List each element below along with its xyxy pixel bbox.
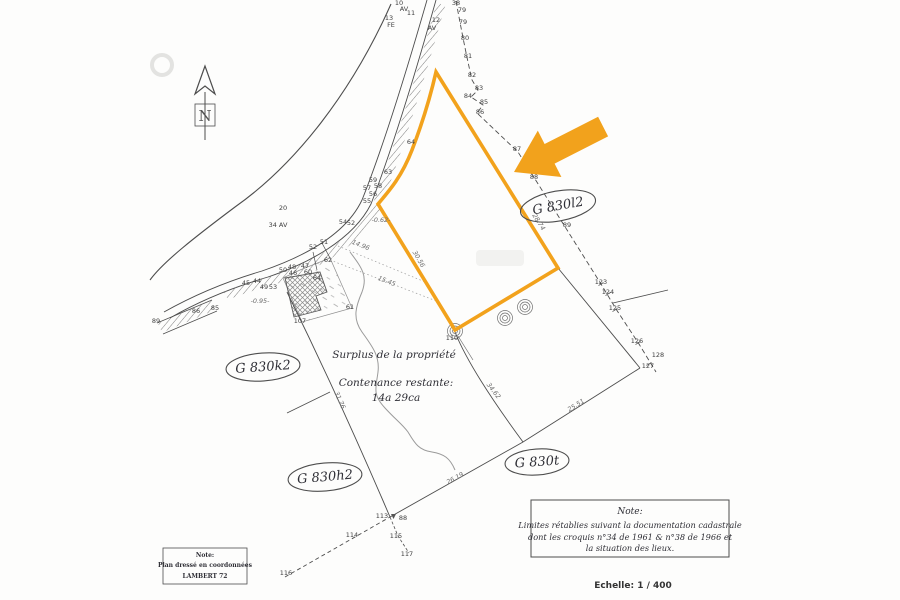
map-point-label: 123 xyxy=(595,278,607,286)
map-point-label: 49 xyxy=(260,283,268,291)
map-point-label: 89 xyxy=(152,317,160,325)
map-point-label: 110 xyxy=(446,334,458,342)
erased-stamp-artifact xyxy=(476,250,524,266)
note-line: Plan dressé en coordonnées xyxy=(158,562,253,569)
note-line: LAMBERT 72 xyxy=(183,573,228,580)
surplus-annotation: Surplus de la propriété xyxy=(332,349,456,361)
punch-hole-artifact xyxy=(152,55,172,75)
map-point-label: 88 xyxy=(399,514,407,522)
map-point-label: 34 AV xyxy=(269,221,288,229)
map-point-label: 12 xyxy=(432,16,440,24)
map-point-label: 87 xyxy=(513,145,521,153)
map-point-label: 86 xyxy=(192,307,200,315)
branch-line-right xyxy=(613,290,668,303)
dimension-label: 25.51 xyxy=(566,397,586,413)
freehand-limit-line xyxy=(350,252,455,470)
map-point-label: 85 xyxy=(211,304,219,312)
note-line: la situation des lieux. xyxy=(586,543,675,553)
parcel-name-g830t: G 830t xyxy=(504,447,570,477)
map-point-label: 107 xyxy=(294,317,306,325)
map-point-label: 116 xyxy=(280,569,292,577)
note-box-left: Note: Plan dressé en coordonnées LAMBERT… xyxy=(158,548,253,584)
map-point-label: 52 xyxy=(309,243,317,251)
north-letter: N xyxy=(198,107,211,125)
map-point-label: 86 xyxy=(476,108,484,116)
note-line: Limites rétablies suivant la documentati… xyxy=(517,520,742,530)
dashed-boundary-ne xyxy=(456,1,656,372)
boundary-south-east xyxy=(390,368,640,517)
map-point-label: 61 xyxy=(346,303,354,311)
dimension-label: 15.45 xyxy=(377,274,397,288)
parcel-label-text: G 830t xyxy=(514,453,560,471)
map-point-label: 84 xyxy=(464,92,472,100)
map-point-label: 82 xyxy=(468,71,476,79)
map-point-label: 125 xyxy=(609,304,621,312)
document-page: N xyxy=(0,0,900,600)
map-point-label: 64 xyxy=(313,274,321,282)
parcel-label-text: G 830k2 xyxy=(235,358,291,377)
dashed-boundary-sw xyxy=(285,517,390,577)
note-title: Note: xyxy=(196,552,214,559)
map-point-label: 60 xyxy=(304,268,312,276)
map-point-label: 124 xyxy=(602,288,614,296)
scale-label: Echelle: 1 / 400 xyxy=(594,581,672,591)
map-point-label: 55 xyxy=(363,197,371,205)
note-title: Note: xyxy=(616,507,642,517)
map-point-label: 53 xyxy=(269,283,277,291)
parcel-name-g830k2: G 830k2 xyxy=(225,350,301,383)
map-point-label: 51 xyxy=(320,238,328,246)
map-point-label: 20 xyxy=(279,204,287,212)
map-point-label: 52 xyxy=(347,219,355,227)
contenance-value: 14a 29ca xyxy=(372,392,420,404)
note-line: dont les croquis n°34 de 1961 & n°38 de … xyxy=(528,532,733,542)
map-point-label: 115 xyxy=(390,532,402,540)
map-point-label: 59 xyxy=(369,176,377,184)
map-point-label: 81 xyxy=(464,52,472,60)
arrow-icon xyxy=(514,117,608,177)
tree-icon xyxy=(518,300,533,315)
map-point-label: 57 xyxy=(363,184,371,192)
contenance-label: Contenance restante: xyxy=(339,377,454,389)
map-point-label: 79 xyxy=(458,6,466,14)
note-box-right: Note: Limites rétablies suivant la docum… xyxy=(517,500,742,557)
map-point-label: 50 xyxy=(279,266,287,274)
map-point-label: 45 xyxy=(242,279,250,287)
map-point-label: AV xyxy=(400,5,409,13)
tree-icon xyxy=(498,311,513,326)
map-point-label: 62 xyxy=(324,256,332,264)
map-point-label: 128 xyxy=(652,351,664,359)
north-arrow-icon: N xyxy=(195,66,215,140)
map-point-label: 127 xyxy=(642,362,654,370)
map-point-label: 83 xyxy=(475,84,483,92)
map-point-label: 117 xyxy=(401,550,413,558)
parcel-label-text: G 830h2 xyxy=(297,468,354,488)
dimension-label: 14.96 xyxy=(351,238,371,252)
cadastral-map: N xyxy=(0,0,900,600)
map-point-label: AV xyxy=(428,24,437,32)
map-point-label: 85 xyxy=(480,98,488,106)
dimension-label: -0.62- xyxy=(372,216,392,224)
map-point-label: 88 xyxy=(530,173,538,181)
map-point-label: FE xyxy=(387,21,395,29)
map-point-label: 89 xyxy=(563,221,571,229)
dimension-label: 26.19 xyxy=(445,470,465,486)
map-point-label: 80 xyxy=(461,34,469,42)
dimension-label: -0.95- xyxy=(251,297,271,305)
map-point-label: 126 xyxy=(631,337,643,345)
map-point-labels: 101113FEAV12AV38797980818283848586878889… xyxy=(152,0,664,577)
map-point-label: 63 xyxy=(384,168,392,176)
map-point-label: 46 xyxy=(289,269,297,277)
dimension-label: 31.76 xyxy=(332,390,347,410)
parcel-name-g830h2: G 830h2 xyxy=(287,460,363,494)
map-point-label: 79 xyxy=(459,18,467,26)
map-point-label: 114 xyxy=(346,531,358,539)
k2-h2-spur xyxy=(287,392,330,413)
map-point-label: 113 xyxy=(376,512,388,520)
map-point-label: 64 xyxy=(407,138,415,146)
